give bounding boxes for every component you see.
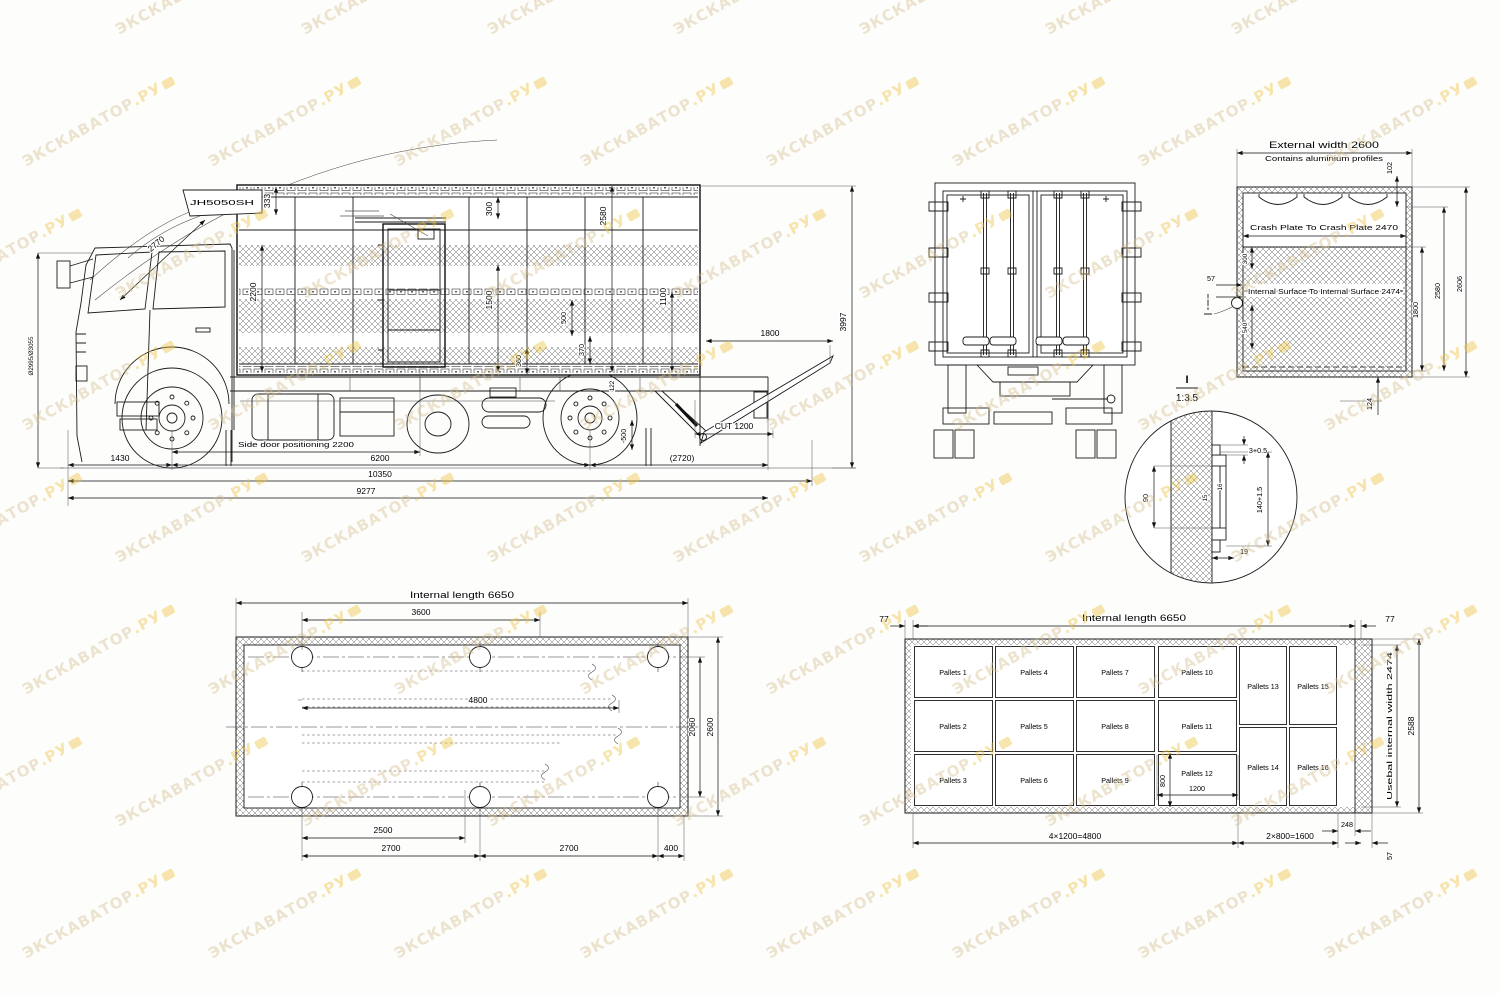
pallet-label: Pallets 10: [1181, 668, 1213, 677]
dim-1430: 1430: [111, 453, 130, 463]
dim-2600: 2600: [705, 717, 715, 736]
dim-1800: 1800: [1411, 302, 1420, 318]
dim-1800: 1800: [761, 328, 780, 338]
windshield: [88, 252, 152, 313]
tow-hook-icon: [1107, 395, 1115, 403]
dim-300: 300: [484, 202, 494, 216]
license-plate: [1008, 367, 1038, 375]
pallet-label: Pallets 1: [939, 668, 967, 677]
dim-2580: 2580: [1433, 283, 1442, 299]
dim-9277: 9277: [357, 486, 376, 496]
box-body: [237, 185, 700, 375]
dim-360: 360: [514, 355, 523, 367]
profile-section: [1212, 445, 1226, 552]
profiles-note: Contains aluminium profiles: [1265, 154, 1384, 163]
dim-6200: 6200: [371, 453, 390, 463]
dim-2606: 2606: [1455, 276, 1464, 292]
door-handle-icon: [963, 337, 989, 345]
rear-wheels: [934, 430, 1116, 458]
dim-1100: 1100: [658, 288, 668, 307]
air-tank: [482, 398, 546, 412]
door-handle-icon: [196, 328, 210, 332]
dim-3: 3+0.5: [1249, 446, 1267, 455]
pallet-label: Pallets 11: [1181, 722, 1212, 731]
rear-view: [929, 183, 1141, 458]
dim-2588: 2588: [1406, 716, 1416, 735]
dim-2700-left: 2700: [382, 843, 401, 853]
pallet-label: Pallets 9: [1101, 776, 1129, 785]
usable-width-label: Usebal internal width 2474: [1385, 652, 1394, 800]
crash-plate-label: Crash Plate To Crash Plate 2470: [1250, 223, 1398, 232]
door-handle-icon: [1063, 337, 1089, 345]
pallet-label: Pallets 12: [1181, 769, 1213, 778]
dim-1500: 1500: [484, 290, 494, 309]
dim-4800: 4800: [469, 695, 488, 705]
dim-3600: 3600: [412, 607, 431, 617]
pallet-label: Pallets 8: [1101, 722, 1129, 731]
detail-title-mark: I: [1185, 374, 1188, 386]
dim-2700-right: 2700: [560, 843, 579, 853]
internal-surface-label: Internal Surface To Internal Surface 247…: [1248, 287, 1400, 296]
pallet-label: Pallets 7: [1101, 668, 1129, 677]
dim-400: 400: [664, 843, 678, 853]
cab-model-label: JH5050SH: [190, 198, 254, 207]
plan-view: Internal length 6650 3600 4800 2060 2600…: [226, 590, 723, 861]
dim-cab-height: Ø2995/Ø3055: [28, 336, 35, 375]
dim-370: 370: [577, 344, 586, 356]
pallet-label: Pallets 13: [1247, 682, 1279, 691]
dim-10350: 10350: [368, 469, 392, 479]
dim-800: 800: [1158, 775, 1167, 787]
dim-124: 124: [1365, 398, 1374, 410]
pallet-label: Pallets 15: [1297, 682, 1329, 691]
dim-300: 300: [1242, 253, 1249, 264]
dim-2500: 2500: [374, 825, 393, 835]
dim-77-right: 77: [1385, 614, 1395, 624]
pallet-label: Pallets 3: [939, 776, 967, 785]
dim-19: 19: [1240, 547, 1248, 556]
pallet-layout-view: Pallets 1 Pallets 2 Pallets 3 Pallets 4 …: [879, 613, 1423, 860]
dim-102: 102: [1385, 162, 1394, 174]
pallet-label: Pallets 6: [1020, 776, 1048, 785]
dim-333: 333: [262, 194, 272, 208]
mirror-icon: [57, 261, 70, 288]
dim-cut-1200: CUT 1200: [715, 421, 754, 431]
door-window: [153, 251, 225, 309]
pallet-label: Pallets 5: [1020, 722, 1048, 731]
dim-2060: 2060: [687, 717, 697, 736]
pallet-label: Pallets 14: [1247, 763, 1279, 772]
dim-57: 57: [1207, 274, 1215, 283]
dim-15: 15: [1202, 494, 1209, 501]
door-handle-icon: [990, 337, 1016, 345]
pallet-label: Pallets 16: [1297, 763, 1329, 772]
dim-140: 140+1.5: [1255, 487, 1264, 513]
dim-540: 540: [1242, 322, 1249, 333]
dim-248: 248: [1341, 820, 1353, 829]
truck-blueprint: JH5050SH 2770 Ø2995/Ø3055 333 2200 300 1…: [0, 0, 1500, 995]
external-width-label: External width 2600: [1269, 140, 1379, 150]
dim-3997: 3997: [838, 312, 848, 331]
rear-underbody: [934, 365, 1122, 458]
dim-1200: 1200: [1189, 784, 1205, 793]
dim-77-left: 77: [879, 614, 889, 624]
plan-title: Internal length 6650: [410, 590, 514, 600]
dim-2200: 2200: [248, 282, 258, 301]
detail-mark: I: [1207, 298, 1210, 308]
dim-2x800: 2×800=1600: [1266, 831, 1314, 841]
detail-ring: [1232, 298, 1243, 309]
dim-2720: (2720): [670, 453, 695, 463]
pallet-title: Internal length 6650: [1082, 613, 1186, 623]
pallet-label: Pallets 2: [939, 722, 967, 731]
dim-90: 90: [1141, 494, 1150, 502]
battery-box: [340, 398, 394, 436]
dim-2770: 2770: [146, 234, 167, 254]
dim-500: 500: [559, 312, 568, 324]
dim-122: 122: [609, 380, 616, 391]
dim-57: 57: [1385, 852, 1394, 860]
spare-wheel: [407, 395, 469, 453]
dim-16: 16: [1217, 483, 1224, 490]
dim-4x1200: 4×1200=4800: [1049, 831, 1102, 841]
detail-scale: 1:3.5: [1176, 393, 1199, 404]
dim-2580: 2580: [598, 206, 608, 225]
dim-side-door: Side door positioning 2200: [238, 440, 354, 449]
detail-view: I 1:3.5 90 3+0.5 140+1.5 15 16: [1125, 374, 1297, 586]
drawing-sheet: JH5050SH 2770 Ø2995/Ø3055 333 2200 300 1…: [0, 0, 1500, 995]
dim-minus500: -500: [619, 429, 628, 443]
truck-cab: [57, 244, 234, 462]
door-handle-icon: [1036, 337, 1062, 345]
headlight-icon: [76, 366, 87, 381]
pallet-label: Pallets 4: [1020, 668, 1048, 677]
side-view: JH5050SH 2770 Ø2995/Ø3055 333 2200 300 1…: [28, 140, 856, 506]
